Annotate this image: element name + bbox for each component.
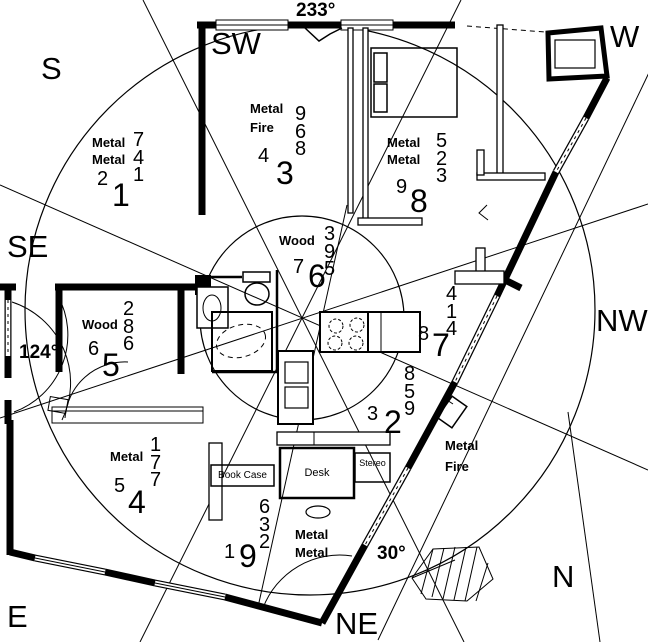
- compass-label-ne: NE: [335, 608, 378, 639]
- element-line: Metal: [250, 101, 283, 116]
- element-line: Metal: [110, 449, 143, 464]
- degree-label-facing: 233°: [296, 1, 335, 20]
- star: 9: [404, 398, 415, 420]
- palace-top-center-star-medium: 4: [258, 146, 269, 166]
- palace-left-star-big: 5: [102, 349, 120, 381]
- pillow: [374, 53, 387, 82]
- element-line: Metal: [387, 152, 420, 167]
- compass-label-w: W: [610, 21, 639, 52]
- element-line: Metal: [295, 527, 328, 542]
- element-line: Fire: [445, 459, 469, 474]
- palace-bottom-right-elements: Metal Fire: [445, 435, 478, 477]
- degree-label-ne: 30°: [377, 544, 406, 563]
- pillow: [374, 84, 387, 112]
- palace-left-star-medium: 6: [88, 339, 99, 359]
- palace-bottom-center-star-medium: 1: [224, 542, 235, 562]
- element-line: Wood: [279, 233, 315, 248]
- palace-bottom-center-elements: Metal Metal: [295, 526, 328, 562]
- palace-top-left-elements: Metal Metal: [92, 134, 125, 168]
- palace-top-right-star-big: 8: [410, 185, 428, 217]
- palace-top-right-star-column: 5 2 3: [436, 133, 447, 186]
- compass-label-nw: NW: [596, 305, 648, 336]
- compass-circles: [25, 25, 595, 595]
- chair: [306, 506, 330, 518]
- compass-label-n: N: [552, 561, 574, 592]
- floorplan-page: S SW W SE NW E NE N 233° 124° 30° Metal …: [0, 0, 648, 642]
- palace-bottom-center-star-big: 9: [239, 540, 257, 572]
- palace-lower-right-star-column: 8 5 9: [404, 366, 415, 419]
- desk-label: Desk: [280, 448, 354, 498]
- palace-bottom-left-star-medium: 5: [114, 476, 125, 496]
- compass-label-se: SE: [7, 231, 48, 262]
- palace-center-elements: Wood: [279, 232, 315, 249]
- star: 7: [150, 469, 161, 491]
- palace-lower-right-star-medium: 3: [367, 404, 378, 424]
- palace-left-star-column: 2 8 6: [123, 301, 134, 354]
- element-line: Wood: [82, 317, 118, 332]
- palace-lower-right-star-big: 2: [384, 406, 402, 438]
- stairs: [412, 547, 493, 601]
- palace-top-left-star-column: 7 4 1: [133, 132, 144, 185]
- palace-top-left-star-medium: 2: [97, 169, 108, 189]
- palace-top-center-star-column: 9 6 8: [295, 106, 306, 159]
- palace-left-elements: Wood: [82, 316, 118, 333]
- element-line: Metal: [445, 438, 478, 453]
- palace-top-left-star-big: 1: [112, 179, 130, 211]
- palace-right-star-medium: 8: [418, 324, 429, 344]
- palace-center-star-big: 6: [308, 260, 326, 292]
- palace-right-star-big: 7: [432, 329, 450, 361]
- element-line: Metal: [295, 545, 328, 560]
- element-line: Fire: [250, 120, 274, 135]
- palace-bottom-center-star-column: 6 3 2: [259, 499, 270, 552]
- palace-bottom-left-elements: Metal: [110, 448, 143, 465]
- star: 6: [123, 333, 134, 355]
- compass-label-e: E: [7, 601, 28, 632]
- palace-top-center-elements: Metal Fire: [250, 99, 283, 137]
- sideboard: [52, 407, 203, 423]
- element-line: Metal: [387, 135, 420, 150]
- star: 1: [133, 164, 144, 186]
- palace-top-center-star-big: 3: [276, 157, 294, 189]
- degree-label-entry: 124°: [19, 343, 58, 362]
- compass-label-sw: SW: [211, 28, 261, 59]
- book-case-label: Book Case: [211, 465, 274, 486]
- star: 8: [295, 138, 306, 160]
- palace-center-star-medium: 7: [293, 257, 304, 277]
- element-line: Metal: [92, 135, 125, 150]
- star: 3: [436, 165, 447, 187]
- stereo-label: Stereo: [355, 453, 390, 473]
- palace-top-right-star-medium: 9: [396, 177, 407, 197]
- compass-label-s: S: [41, 53, 62, 84]
- closet-top-right: [467, 26, 607, 79]
- palace-bottom-left-star-column: 1 7 7: [150, 437, 161, 490]
- palace-top-right-elements: Metal Metal: [387, 134, 420, 168]
- star: 2: [259, 531, 270, 553]
- palace-bottom-left-star-big: 4: [128, 486, 146, 518]
- element-line: Metal: [92, 152, 125, 167]
